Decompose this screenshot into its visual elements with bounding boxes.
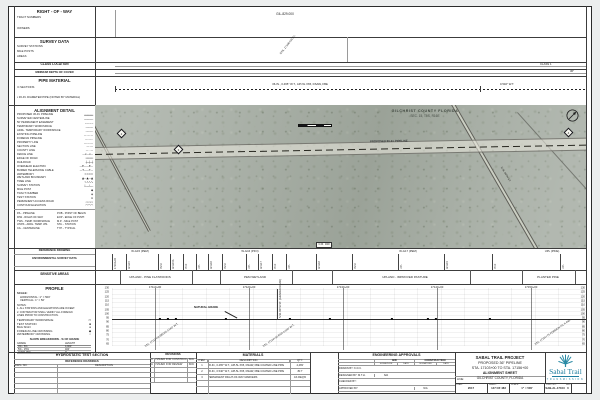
material-qty: 817' xyxy=(290,370,310,373)
elevation-label: 90 xyxy=(572,321,585,324)
map-road-name: N.W. 60TH ST. xyxy=(500,166,511,182)
env-tick-label: W-G18 xyxy=(318,261,321,269)
env-tick: PEM xyxy=(158,254,159,270)
elevation-label: 105 xyxy=(96,308,109,311)
ref-row-dwg xyxy=(14,389,58,393)
env-tick-label: W-G17 xyxy=(260,261,263,269)
materials-rows: 1 36-IN., 0.465" W.T., API-5L X65, DSAW,… xyxy=(196,363,310,387)
profile-note-line: LINES PRIOR TO CONSTRUCTION. xyxy=(17,314,93,317)
env-group-label: W-G15 (PEM) xyxy=(131,249,149,253)
legend-label: BURIED TELEPHONE CABLE xyxy=(17,169,54,172)
elevation-label: 70 xyxy=(96,338,109,341)
elevation-label: 110 xyxy=(572,304,585,307)
pipe-segment-label: 36-IN., 0.465" W.T., API-5L X65, DSAW, F… xyxy=(240,83,360,86)
approvals-date-1: DATE xyxy=(397,363,414,365)
pipe-band-row2: ▪ 36-IN. DIAMETER PIPE (NOTED BY MATERIA… xyxy=(17,96,93,99)
approval-role: CHECKED BY: xyxy=(338,380,374,383)
env-tick-label: PFO xyxy=(274,264,277,269)
env-tick: 17104+60 xyxy=(112,254,113,270)
env-tick: UPL xyxy=(560,254,561,270)
env-tick: PFO xyxy=(272,254,273,270)
sensitive-tick xyxy=(332,270,333,284)
legend-label: PROPERTY LINE xyxy=(17,141,38,144)
crossing-callout-text: N.W. 60TH ST. (GRADED ROAD) xyxy=(279,279,282,318)
revision-description: ISSUED FOR REVIEW xyxy=(155,363,187,367)
grade-point-marker xyxy=(159,318,161,320)
elevation-label: 75 xyxy=(572,334,585,337)
pipeline-corridor xyxy=(95,137,586,160)
margin-tick xyxy=(8,105,14,106)
ref-row-dwg xyxy=(14,378,58,382)
sensitive-area-label: UPLAND - IMPROVED PASTURE xyxy=(382,275,428,279)
revision-by xyxy=(187,378,195,382)
margin-tick xyxy=(8,352,14,353)
approval-role: DESIGNED BY: M.T.H. xyxy=(338,374,374,377)
legend-label: EXISTING PIPELINE xyxy=(17,133,42,136)
env-tick-label: UPL xyxy=(400,264,403,269)
elevation-label: 130 xyxy=(572,287,585,290)
legend-label: SECTION LINE xyxy=(17,145,36,148)
line xyxy=(115,66,586,67)
station-range: STA. 17103+00 TO STA. 17156+00 xyxy=(455,366,545,370)
material-description: 36-IN., 0.540" W.T., API-5L X65, DSAW, F… xyxy=(208,370,290,373)
env-tick: UPL xyxy=(196,254,197,270)
env-tick: PFO xyxy=(492,254,493,270)
grade-point-marker xyxy=(289,318,291,320)
approvals-title: ENGINEERING APPROVALS xyxy=(338,353,455,357)
line xyxy=(14,37,586,38)
elevation-label: 85 xyxy=(572,325,585,328)
legend-label: WETLAND BOUNDARY xyxy=(17,176,46,179)
profile-notes: NOTES:1. ALL STATIONS AND ELEVATIONS ARE… xyxy=(17,304,93,317)
approval-role: APPROVED BY: xyxy=(338,387,374,390)
natural-grade-line xyxy=(112,319,586,320)
legend-label: ADDL. TEMPORARY WORKSPACE xyxy=(17,129,61,132)
line xyxy=(14,248,586,249)
map-road-chip: C.R. 340 xyxy=(316,242,332,248)
line xyxy=(115,73,586,74)
line xyxy=(14,284,586,285)
line xyxy=(115,10,116,37)
legend-label: SURVEY STATION xyxy=(17,184,40,187)
slope-grade: 0% - 5% xyxy=(17,345,65,347)
survey-band-field-label: AREAS xyxy=(17,55,26,58)
abbreviation-list: P/L - PIPELINER/W - RIGHT-OF-WAYTWS - TE… xyxy=(17,212,93,231)
logo-rule xyxy=(552,376,579,377)
env-tick-label: W-G19 xyxy=(446,261,449,269)
line xyxy=(14,254,95,255)
env-tick: PEM xyxy=(352,254,353,270)
env-tick-label: W-G15A xyxy=(172,259,175,269)
env-tick-label: UPL xyxy=(198,264,201,269)
environmental-band-title: ENVIRONMENTAL SURVEY DATA xyxy=(14,257,95,260)
env-group-label: W-G16 (PFO) xyxy=(241,249,258,253)
grade-point-marker xyxy=(427,318,429,320)
elevation-label: 120 xyxy=(96,295,109,298)
north-arrow-icon xyxy=(566,109,579,122)
ref-col-desc: DESCRIPTION xyxy=(58,364,150,367)
env-tick-label: W-G15 xyxy=(128,261,131,269)
titleblock-cell: YEAR: 2017 xyxy=(455,383,488,394)
row-band-field-label: TRACT NUMBERS xyxy=(17,16,41,19)
abbreviation-item: TYP. - TYPICAL xyxy=(57,227,93,231)
elevation-label: 65 xyxy=(96,342,109,345)
materials-col-item: ITEM xyxy=(196,359,208,362)
env-tick: UPL xyxy=(286,254,287,270)
slope-length: 400' xyxy=(65,348,70,350)
reference-drawing-band-title: REFERENCE DRAWING xyxy=(14,249,95,252)
titleblock-cell-value: 2017 xyxy=(455,386,487,390)
elevation-label: 120 xyxy=(572,295,585,298)
env-tick: W-G19 xyxy=(444,254,445,270)
map-pipeline-label: PROPOSED 36-IN. PIPELINE xyxy=(370,139,408,144)
class-band-title: CLASS LOCATION xyxy=(14,63,95,67)
depth-value: 36" xyxy=(570,70,574,73)
profile-legend-row: WATERBODY CROSSING ○ xyxy=(17,332,91,336)
titleblock-bottom-cells: YEAR: 2017 SHEET: 147 OF 483 SCALE: 1" =… xyxy=(455,383,586,394)
grade-point-marker xyxy=(225,318,227,320)
legend-label: PERMANENT ACCESS ROAD xyxy=(17,200,54,203)
line xyxy=(586,6,587,394)
titleblock-cell: REV. 0 xyxy=(565,383,572,394)
tract-diamond-number: 2 xyxy=(119,131,124,136)
materials-row xyxy=(196,381,310,387)
env-tick: W-G16 xyxy=(208,254,209,270)
approvals-date-2: DATE xyxy=(436,363,455,365)
pipeline-centerline xyxy=(95,144,586,155)
ref-row-desc xyxy=(58,384,150,388)
reference-drawings-rows xyxy=(14,368,150,394)
legend-label: MILE POST xyxy=(17,188,31,191)
line xyxy=(14,69,586,70)
env-tick: W-G17 xyxy=(258,254,259,270)
alignment-detail-title: ALIGNMENT DETAIL xyxy=(14,108,95,113)
aerial-map: GILCHRIST COUNTY FLORIDA SEC. 15, T9S, R… xyxy=(95,105,586,248)
env-tick-label: PFO xyxy=(494,264,497,269)
elevation-label: 105 xyxy=(572,308,585,311)
sensitive-tick xyxy=(292,270,293,284)
material-item: 1 xyxy=(196,364,208,367)
material-qty: AS REQ'D xyxy=(290,376,310,379)
legend-label: RAILROAD xyxy=(17,161,31,164)
material-description: 36-IN., 0.465" W.T., API-5L X65, DSAW, F… xyxy=(208,364,290,367)
hydrostatic-title: HYDROSTATIC TEST SECTION xyxy=(14,353,150,357)
approvals-row: APPROVED BY: N/A xyxy=(338,386,455,393)
profile-scale-v: VERTICAL: 1" = 50' xyxy=(20,299,45,302)
line xyxy=(347,37,348,62)
line xyxy=(14,209,95,210)
approval-con-signature: N/A xyxy=(414,387,436,390)
elevation-label: 70 xyxy=(572,338,585,341)
elevation-label: 95 xyxy=(96,317,109,320)
legend-label: 50' PERMANENT EASEMENT xyxy=(17,121,54,124)
env-tick-label: PEM xyxy=(160,264,163,269)
legend-row: CONTOUR ELEVATION ⌒⌒⌒ xyxy=(17,204,93,208)
env-tick-label: W-G16 xyxy=(210,261,213,269)
sensitive-band-title: SENSITIVE AREAS xyxy=(14,273,95,277)
tract-diamond-number: 3 xyxy=(176,147,181,152)
elevation-label: 80 xyxy=(572,330,585,333)
env-tick-label: PEM xyxy=(354,264,357,269)
map-scale-bar xyxy=(298,124,332,127)
line xyxy=(14,76,586,77)
road-diagonal xyxy=(450,105,539,248)
legend-label: EDGE OF ROAD xyxy=(17,157,38,160)
line xyxy=(480,86,481,92)
elevation-label: 85 xyxy=(96,325,109,328)
legend-label: PROPOSED 36-IN. PIPELINE xyxy=(17,113,53,116)
approvals-rows: DRAWN BY: K.D.C. DESIGNED BY: M.T.H. N/A… xyxy=(338,366,455,392)
elevation-label: 115 xyxy=(96,299,109,302)
legend-label: FENCE LINE xyxy=(17,153,33,156)
env-tick: UPL xyxy=(246,254,247,270)
profile-grid xyxy=(112,288,586,346)
crossing-callout-line xyxy=(277,289,278,320)
env-group-label: UPL (PINE) xyxy=(545,249,560,253)
env-tick-label: PEM xyxy=(224,264,227,269)
revision-by xyxy=(187,368,195,372)
revision-description xyxy=(155,373,187,377)
titleblock-cell-value: 0 xyxy=(565,386,571,390)
sensitive-tick xyxy=(192,270,193,284)
material-description: PERMANENT RIGHT-OF-WAY MARKERS xyxy=(208,376,290,379)
elevation-label: 100 xyxy=(572,312,585,315)
project-title: SABAL TRAIL PROJECT xyxy=(455,355,545,360)
slope-length: 4,900' xyxy=(65,345,72,347)
elevation-label: 115 xyxy=(572,299,585,302)
env-tick: PFO xyxy=(183,254,184,270)
profile-legend-symbol: ○ xyxy=(89,332,91,336)
approval-bid-signature: N/A xyxy=(374,374,397,377)
alignment-detail-legend: PROPOSED 36-IN. PIPELINE ━━━━━━ SURVEYED… xyxy=(17,113,93,208)
approvals-spacer xyxy=(338,363,374,365)
ref-row-desc xyxy=(58,389,150,393)
legend-label: TEST STATION xyxy=(17,196,36,199)
titleblock-cell-value: 1" = 500' xyxy=(510,386,544,390)
materials-col-qty: QTY. xyxy=(290,359,310,362)
revisions-rows: 0 ISSUED FOR CONSTRUCTION KDC A ISSUED F… xyxy=(150,358,196,383)
map-section-label: SEC. 15, T9S, R16E xyxy=(325,115,525,119)
sheet-type: ALIGNMENT SHEET xyxy=(455,371,545,375)
county-label: GILCHRIST COUNTY, FLORIDA xyxy=(455,377,545,381)
titleblock-cell-value: 147 OF 483 xyxy=(488,386,509,390)
revision-description xyxy=(155,368,187,372)
line xyxy=(115,86,116,92)
profile-legend-label: WATERBODY CROSSING xyxy=(17,332,50,336)
sensitive-area-label: PLANTED PINE xyxy=(537,275,559,279)
ref-row-desc xyxy=(58,368,150,372)
ref-row-desc xyxy=(58,378,150,382)
env-tick: UPL xyxy=(398,254,399,270)
sensitive-tick xyxy=(522,270,523,284)
line xyxy=(14,266,95,267)
titleblock-cell: DWG. NO. SAB-AL-17103 xyxy=(545,383,565,394)
revisions-title: REVISIONS xyxy=(150,353,196,356)
elevation-label: 80 xyxy=(96,330,109,333)
env-tick: W-G15 xyxy=(126,254,127,270)
legend-symbol: ⌒⌒⌒ xyxy=(85,204,93,208)
legend-label: TRACT NUMBER xyxy=(17,192,38,195)
sabal-trail-logo-sub: TRANSMISSION xyxy=(545,378,586,381)
env-tick-label: UPL xyxy=(562,264,565,269)
alignment-sheet-page: RIGHT - OF - WAY TRACT NUMBERSOWNERS GIL… xyxy=(0,0,600,400)
abbreviation-item: C/L - CENTERLINE xyxy=(17,227,53,231)
ref-col-dwg: DWG. NO. xyxy=(14,364,58,367)
ref-row-dwg xyxy=(14,384,58,388)
revision-by xyxy=(187,373,195,377)
line xyxy=(310,352,311,394)
legend-label: CONTOUR ELEVATION xyxy=(17,204,46,207)
legend-label: TREE LINE xyxy=(17,180,31,183)
legend-label: FOREIGN PIPELINE xyxy=(17,137,42,140)
project-subtitle: PROPOSED 36" PIPELINE xyxy=(455,361,545,365)
elevation-label: 75 xyxy=(96,334,109,337)
elevation-label: 100 xyxy=(96,312,109,315)
grade-point-marker xyxy=(391,318,393,320)
env-tick-label: PFO xyxy=(185,264,188,269)
approval-role: DRAWN BY: K.D.C. xyxy=(338,367,374,370)
materials-col-desc: DESCRIPTION xyxy=(208,359,290,362)
elevation-label: 110 xyxy=(96,304,109,307)
sensitive-tick xyxy=(575,270,576,284)
revision-by: KDC xyxy=(187,363,195,367)
grade-point-marker xyxy=(175,318,177,320)
approvals-sig-2: SIGNATURE xyxy=(414,363,436,365)
ref-row-dwg xyxy=(14,373,58,377)
pipe-band-row1: ⊙ SECTIONS xyxy=(17,86,34,89)
elevation-label: 130 xyxy=(96,287,109,290)
revision-description xyxy=(155,378,187,382)
sensitive-area-label: UPLAND - PINE FLATWOODS xyxy=(129,275,170,279)
ref-row-desc xyxy=(58,373,150,377)
ref-row-dwg xyxy=(14,368,58,372)
env-tick: W-G18 xyxy=(316,254,317,270)
revision-row xyxy=(150,378,196,383)
elevation-label: 125 xyxy=(96,291,109,294)
sensitive-tick xyxy=(470,270,471,284)
margin-tick xyxy=(8,248,14,249)
survey-band-field-label: MILE POSTS xyxy=(17,50,34,53)
env-tick: W-G15A xyxy=(170,254,171,270)
row-band-title: RIGHT - OF - WAY xyxy=(14,9,95,14)
line xyxy=(14,62,586,63)
titleblock-cell: SCALE: 1" = 500' xyxy=(510,383,545,394)
line xyxy=(290,359,291,394)
titleblock-cell: SHEET: 147 OF 483 xyxy=(488,383,510,394)
elevation-label: 90 xyxy=(96,321,109,324)
legend-label: OVERHEAD ELECTRIC xyxy=(17,165,46,168)
sensitive-tick xyxy=(220,270,221,284)
sabal-trail-logo-icon xyxy=(558,354,573,367)
pipe-segment-label-2: 0.540" W.T. xyxy=(500,83,514,86)
grade-point-marker xyxy=(489,318,491,320)
pipe-band-title: PIPE MATERIAL xyxy=(14,78,95,83)
grade-point-marker xyxy=(435,318,437,320)
sensitive-area-label: PEM WETLAND xyxy=(244,275,266,279)
profile-legend: TEMPORARY WORKSPACE ▭ TEST STATION ■ BAG… xyxy=(17,318,91,336)
material-qty: 4,483' xyxy=(290,364,310,367)
revision-by: KDC xyxy=(187,358,195,362)
line xyxy=(208,359,209,394)
class-value: CLASS 1 xyxy=(540,63,552,66)
slope-grade: 5% - 15% xyxy=(17,348,65,350)
titleblock-cell-value: SAB-AL-17103 xyxy=(545,386,565,390)
pipe-material-dashed-line xyxy=(115,89,586,90)
env-tick-label: UPL xyxy=(288,264,291,269)
grade-point-marker xyxy=(167,318,169,320)
legend-label: COUNTY LINE xyxy=(17,149,35,152)
row-band-field-label: OWNERS xyxy=(17,27,30,30)
tract-number-label: GIL-829.000 xyxy=(255,13,315,17)
reference-drawings-title: REFERENCE DRAWINGS xyxy=(14,360,150,363)
elevation-label: 65 xyxy=(572,342,585,345)
sabal-trail-logo-name: Sabal Trail xyxy=(545,367,586,376)
natural-grade-label: NATURAL GRADE xyxy=(194,306,218,309)
line xyxy=(14,270,586,271)
env-tick: PEM xyxy=(222,254,223,270)
env-tick-label: 17104+60 xyxy=(114,258,117,269)
legend-label: SURVEYED CENTERLINE xyxy=(17,117,50,120)
material-item: 3 xyxy=(196,376,208,379)
approvals-sig-1: SIGNATURE xyxy=(374,363,397,365)
map-county-title: GILCHRIST COUNTY FLORIDA xyxy=(325,109,525,113)
survey-band-field-label: SURVEY STATIONS xyxy=(17,45,43,48)
env-group-label: W-G17 (PEM) xyxy=(399,249,417,253)
elevation-label: 125 xyxy=(572,291,585,294)
grade-point-marker xyxy=(329,318,331,320)
sensitive-tick xyxy=(120,270,121,284)
env-tick-label: UPL xyxy=(248,264,251,269)
materials-title: MATERIALS xyxy=(196,353,310,357)
tract-diamond-number: 4 xyxy=(566,130,571,135)
depth-band-title: MINIMUM DEPTH OF COVER xyxy=(14,71,95,74)
revision-description: ISSUED FOR CONSTRUCTION xyxy=(155,358,187,362)
material-item: 2 xyxy=(196,370,208,373)
legend-label: WATERBODY xyxy=(17,173,34,176)
reference-drawing-row xyxy=(14,389,150,394)
legend-label: TEMPORARY WORKSPACE xyxy=(17,125,52,128)
trail-line xyxy=(517,112,586,202)
